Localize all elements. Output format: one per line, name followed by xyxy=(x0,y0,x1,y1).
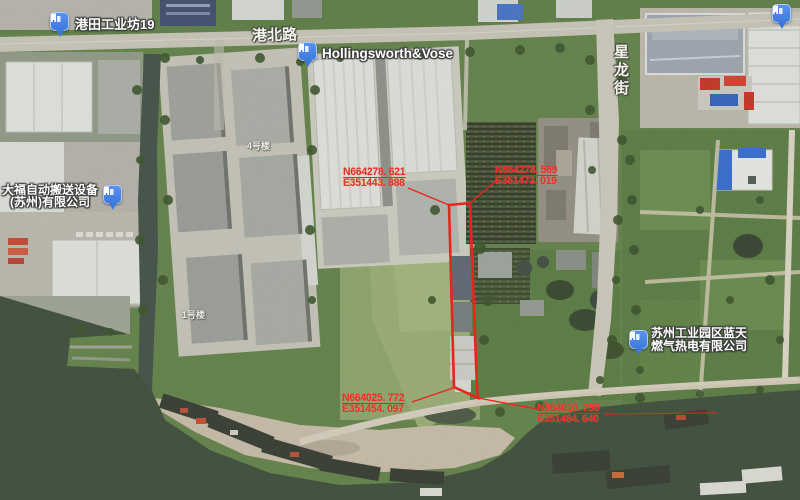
easting-value: E351454. 097 xyxy=(342,403,404,415)
poi-label-daifuku[interactable]: 大福自动搬送设备 (苏州)有限公司 xyxy=(0,184,100,208)
poi-pin-daifuku[interactable] xyxy=(103,185,123,211)
poi-label-lantian[interactable]: 苏州工业园区蓝天 燃气热电有限公司 xyxy=(651,327,747,353)
poi-label-hollingsworth[interactable]: Hollingsworth&Vose xyxy=(322,46,453,61)
poi-label-line1: 苏州工业园区蓝天 xyxy=(651,326,747,340)
poi-pin-hollingsworth[interactable] xyxy=(298,42,318,68)
easting-value: E351484. 640 xyxy=(537,413,599,425)
poi-pin-partial[interactable] xyxy=(772,4,792,30)
poi-pin-gangtian[interactable] xyxy=(50,12,70,38)
building-label-1: 1号楼 xyxy=(182,308,205,321)
poi-label-line2: 燃气热电有限公司 xyxy=(651,339,747,353)
satellite-map-view[interactable]: N664278. 621 E351443. 888 N664278. 569 E… xyxy=(0,0,800,500)
pin-tail xyxy=(304,60,312,67)
poi-pin-lantian[interactable] xyxy=(629,330,649,356)
coord-label-bottom-right: N664010. 756 E351484. 640 xyxy=(537,403,599,424)
coord-label-bottom-left: N664025. 772 E351454. 097 xyxy=(342,393,404,414)
coord-label-top-left: N664278. 621 E351443. 888 xyxy=(343,167,405,188)
coord-label-top-right: N664278. 569 E351473. 019 xyxy=(495,165,557,186)
building-label-4: 4号楼 xyxy=(247,139,270,152)
satellite-base[interactable] xyxy=(0,0,800,500)
pin-tail xyxy=(778,22,786,29)
grain-overlay xyxy=(0,0,800,500)
road-label-xinglong: 星龙街 xyxy=(610,44,631,98)
building-icon xyxy=(298,42,317,61)
poi-label-line2: (苏州)有限公司 xyxy=(10,195,90,209)
road-label-gangbei: 港北路 xyxy=(252,23,298,46)
poi-label-gangtian[interactable]: 港田工业坊19 xyxy=(75,14,154,33)
easting-value: E351473. 019 xyxy=(495,175,557,187)
building-icon xyxy=(50,12,69,31)
building-icon xyxy=(772,4,791,23)
building-icon xyxy=(629,330,648,349)
pin-tail xyxy=(109,203,117,210)
pin-tail xyxy=(635,348,643,355)
pin-tail xyxy=(56,30,64,37)
easting-value: E351443. 888 xyxy=(343,177,405,189)
building-icon xyxy=(103,185,122,204)
